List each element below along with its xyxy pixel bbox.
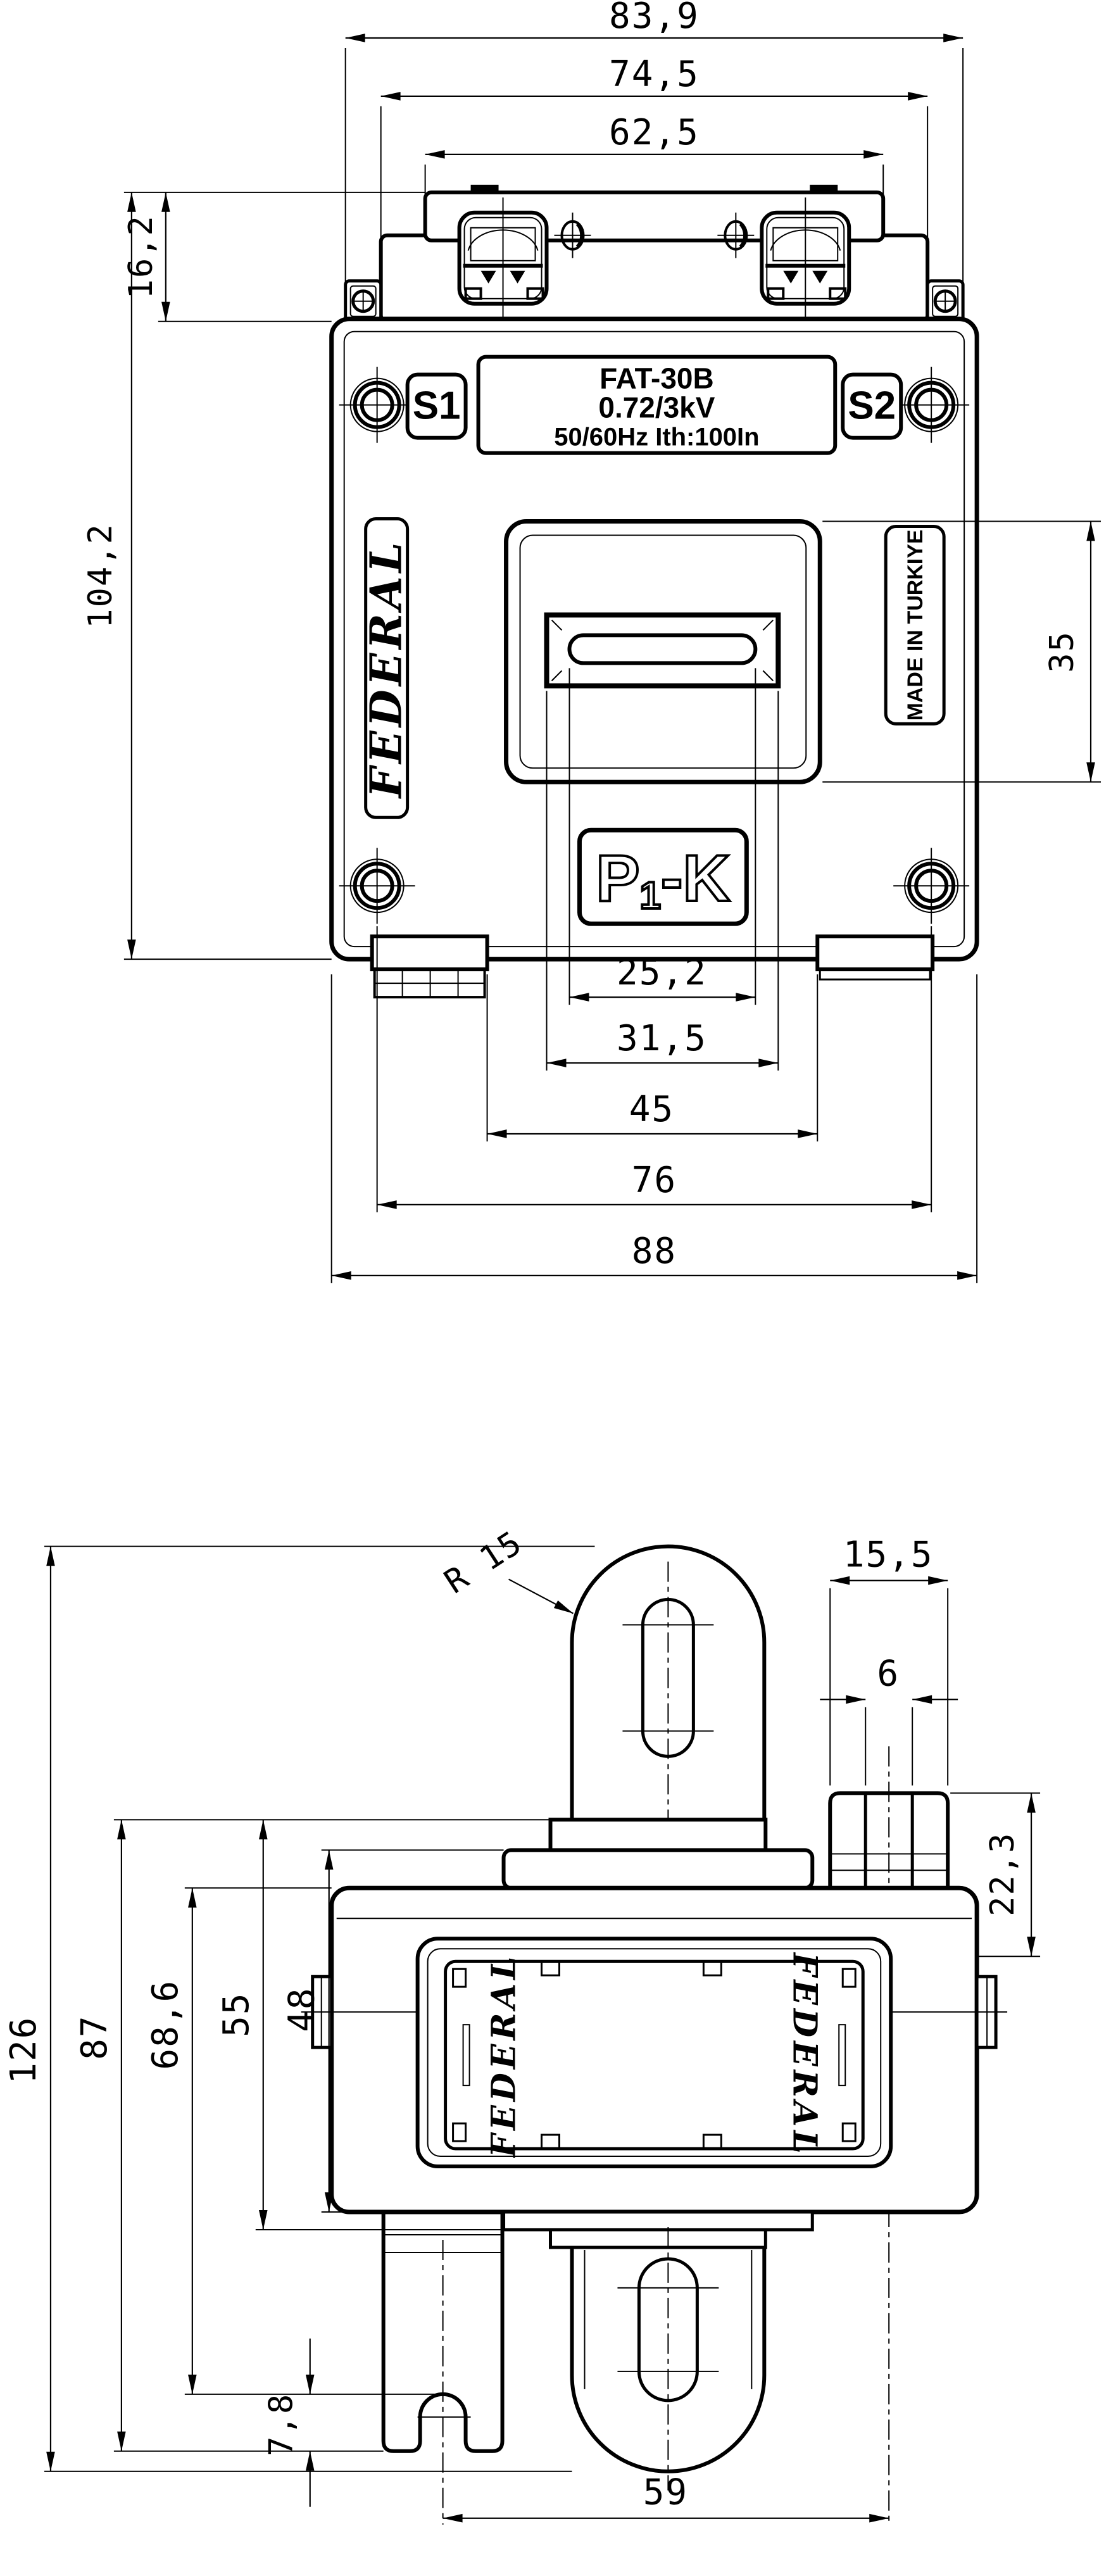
dim-text-87: 87 <box>74 2014 115 2059</box>
dim-text-16-2: 16,2 <box>122 215 160 299</box>
terminal-opening-s1 <box>460 198 547 319</box>
dim-text-48: 48 <box>282 1987 323 2032</box>
dim-text-83-9: 83,9 <box>609 0 700 37</box>
dim-text-25-2: 25,2 <box>617 952 707 993</box>
p1k-label: P1-K <box>579 830 746 924</box>
ear-screw-right <box>927 281 963 322</box>
dim-text-7-8: 7,8 <box>263 2393 301 2456</box>
foot-left <box>372 936 487 997</box>
plate-voltage: 0.72/3kV <box>598 391 715 424</box>
brand-label-front: FEDERAL <box>361 519 412 818</box>
busbar-tab-top <box>572 1547 764 1835</box>
top-mount-boss <box>504 1819 813 1888</box>
dim-text-126: 126 <box>3 2016 44 2084</box>
s1-text: S1 <box>413 384 461 428</box>
terminal-opening-s2 <box>762 198 849 319</box>
busbar-tab-bottom <box>572 2227 764 2491</box>
dim-text-15-5: 15,5 <box>843 1535 934 1576</box>
dim-text-31-5: 31,5 <box>617 1018 707 1059</box>
dim-text-45: 45 <box>629 1089 674 1130</box>
dim-text-6: 6 <box>877 1653 900 1694</box>
top-rib-left <box>471 185 499 194</box>
dim-text-104-2: 104,2 <box>82 523 120 628</box>
top-rib-right <box>810 185 838 194</box>
dim-text-68-6: 68,6 <box>145 1980 186 2070</box>
bottom-mount-boss <box>504 2212 813 2247</box>
dim-height-7-8: 7,8 <box>263 2339 310 2507</box>
technical-drawing: 83,9 74,5 62,5 <box>0 0 1111 2574</box>
dim-text-88: 88 <box>632 1231 677 1272</box>
terminal-badge-s2: S2 <box>843 375 901 438</box>
dim-text-74-5: 74,5 <box>609 54 700 95</box>
brand-text-side-left: FEDERAL <box>485 1953 524 2159</box>
window-housing <box>506 522 820 782</box>
foot-right <box>817 936 932 979</box>
s2-text: S2 <box>848 384 896 428</box>
ear-screw-left <box>346 281 381 322</box>
p1k-p: P <box>596 842 639 915</box>
dim-text-59: 59 <box>643 2472 688 2513</box>
dim-height-16-2: 16,2 <box>122 192 332 322</box>
p1k-rest: -K <box>661 842 731 915</box>
side-view: R 15 15,5 <box>3 1524 1040 2525</box>
brand-text-front: FEDERAL <box>361 539 412 800</box>
front-view: 83,9 74,5 62,5 <box>82 0 1101 1283</box>
terminal-badge-s1: S1 <box>408 375 466 438</box>
dim-text-62-5: 62,5 <box>609 112 700 153</box>
p1k-text: P1-K <box>596 842 730 917</box>
brand-text-side-right: FEDERAL <box>785 1952 824 2158</box>
rating-plate: FAT-30B 0.72/3kV 50/60Hz Ith:100In <box>479 357 836 453</box>
drawing-sheet: 83,9 74,5 62,5 <box>0 0 1111 2574</box>
made-in-text: MADE IN TURKIYE <box>903 529 927 720</box>
dim-text-35: 35 <box>1043 631 1081 673</box>
dim-text-r15: R 15 <box>438 1524 529 1602</box>
p1k-sub: 1 <box>640 874 661 917</box>
dim-width-59: 59 <box>443 2472 889 2518</box>
dim-text-76: 76 <box>632 1160 677 1201</box>
radius-callout-r15: R 15 <box>438 1524 574 1614</box>
terminal-block <box>346 185 963 322</box>
dim-text-22-3: 22,3 <box>984 1832 1022 1916</box>
body-side: FEDERAL FEDERAL <box>301 1888 1007 2212</box>
fork-terminal-bottom <box>384 2212 503 2525</box>
dim-text-55: 55 <box>216 1992 257 2037</box>
plate-model: FAT-30B <box>599 362 714 395</box>
made-in-label: MADE IN TURKIYE <box>886 527 944 724</box>
plate-rating: 50/60Hz Ith:100In <box>554 424 759 451</box>
